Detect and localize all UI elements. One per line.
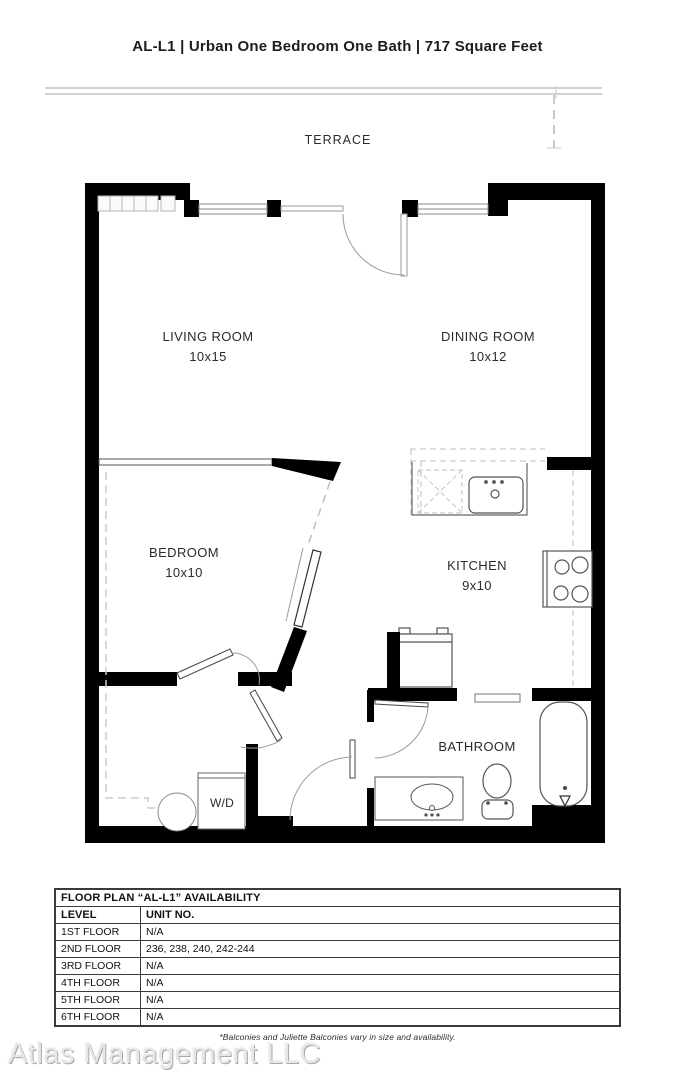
dining-room-name: DINING ROOM	[441, 327, 535, 347]
living-room-dims: 10x15	[162, 347, 253, 367]
table-row: 3RD FLOOR N/A	[55, 958, 620, 975]
bedroom-pocket-door	[271, 548, 321, 692]
table-row: 5TH FLOOR N/A	[55, 992, 620, 1009]
washer-dryer-label: W/D	[210, 793, 234, 813]
column-header-level: LEVEL	[55, 907, 141, 924]
level-cell: 5TH FLOOR	[55, 992, 141, 1009]
table-title-row: FLOOR PLAN “AL-L1” AVAILABILITY	[55, 889, 620, 907]
level-cell: 1ST FLOOR	[55, 924, 141, 941]
bathroom-niche	[475, 694, 520, 702]
living-room-name: LIVING ROOM	[162, 327, 253, 347]
level-cell: 4TH FLOOR	[55, 975, 141, 992]
table-row: 1ST FLOOR N/A	[55, 924, 620, 941]
hallway-bathroom-door	[290, 740, 355, 820]
washer-dryer-name: W/D	[210, 793, 234, 813]
dining-room-dims: 10x12	[441, 347, 535, 367]
dining-room-label: DINING ROOM 10x12	[441, 327, 535, 367]
table-title: FLOOR PLAN “AL-L1” AVAILABILITY	[55, 889, 620, 907]
kitchen-dims: 9x10	[447, 576, 507, 596]
availability-table: FLOOR PLAN “AL-L1” AVAILABILITY LEVEL UN…	[54, 888, 621, 1027]
baseboard-heater-icon	[98, 196, 175, 211]
terrace-edge-lines	[45, 86, 602, 98]
unit-cell: N/A	[141, 992, 621, 1009]
kitchen-label: KITCHEN 9x10	[447, 556, 507, 596]
unit-cell: 236, 238, 240, 242-244	[141, 941, 621, 958]
unit-cell: N/A	[141, 958, 621, 975]
terrace-boundary-dashed	[547, 95, 561, 148]
terrace-name: TERRACE	[305, 130, 372, 150]
refrigerator-icon	[398, 628, 452, 687]
bathroom-label: BATHROOM	[438, 737, 515, 757]
water-heater-icon	[158, 793, 196, 831]
company-watermark: Atlas Management LLC	[8, 1038, 321, 1071]
level-cell: 6TH FLOOR	[55, 1009, 141, 1027]
living-room-label: LIVING ROOM 10x15	[162, 327, 253, 367]
floor-plan-page: { "header": { "title": "AL-L1 | Urban On…	[0, 0, 675, 1080]
closet-rod-dashed	[106, 472, 224, 808]
level-cell: 3RD FLOOR	[55, 958, 141, 975]
column-header-unit: UNIT NO.	[141, 907, 621, 924]
kitchen-sink-icon	[469, 477, 523, 513]
kitchen-name: KITCHEN	[447, 556, 507, 576]
bathtub-icon	[540, 702, 587, 806]
kitchen-dining-divider-wall	[547, 457, 591, 470]
bedroom-partition-wall	[99, 458, 341, 545]
bathroom-door	[375, 700, 428, 758]
table-row: 2ND FLOOR 236, 238, 240, 242-244	[55, 941, 620, 958]
unit-cell: N/A	[141, 924, 621, 941]
unit-cell: N/A	[141, 1009, 621, 1027]
toilet-icon	[482, 764, 513, 819]
stove-icon	[543, 551, 592, 607]
table-row: 4TH FLOOR N/A	[55, 975, 620, 992]
hall-closet-door	[241, 690, 282, 748]
bedroom-name: BEDROOM	[149, 543, 219, 563]
table-header-row: LEVEL UNIT NO.	[55, 907, 620, 924]
terrace-door	[281, 206, 407, 276]
bathroom-name: BATHROOM	[438, 737, 515, 757]
bedroom-label: BEDROOM 10x10	[149, 543, 219, 583]
bedroom-dims: 10x10	[149, 563, 219, 583]
vanity-sink-icon	[375, 777, 463, 820]
terrace-label: TERRACE	[305, 130, 372, 150]
level-cell: 2ND FLOOR	[55, 941, 141, 958]
table-row: 6TH FLOOR N/A	[55, 1009, 620, 1027]
dishwasher-icon	[418, 470, 462, 513]
unit-cell: N/A	[141, 975, 621, 992]
